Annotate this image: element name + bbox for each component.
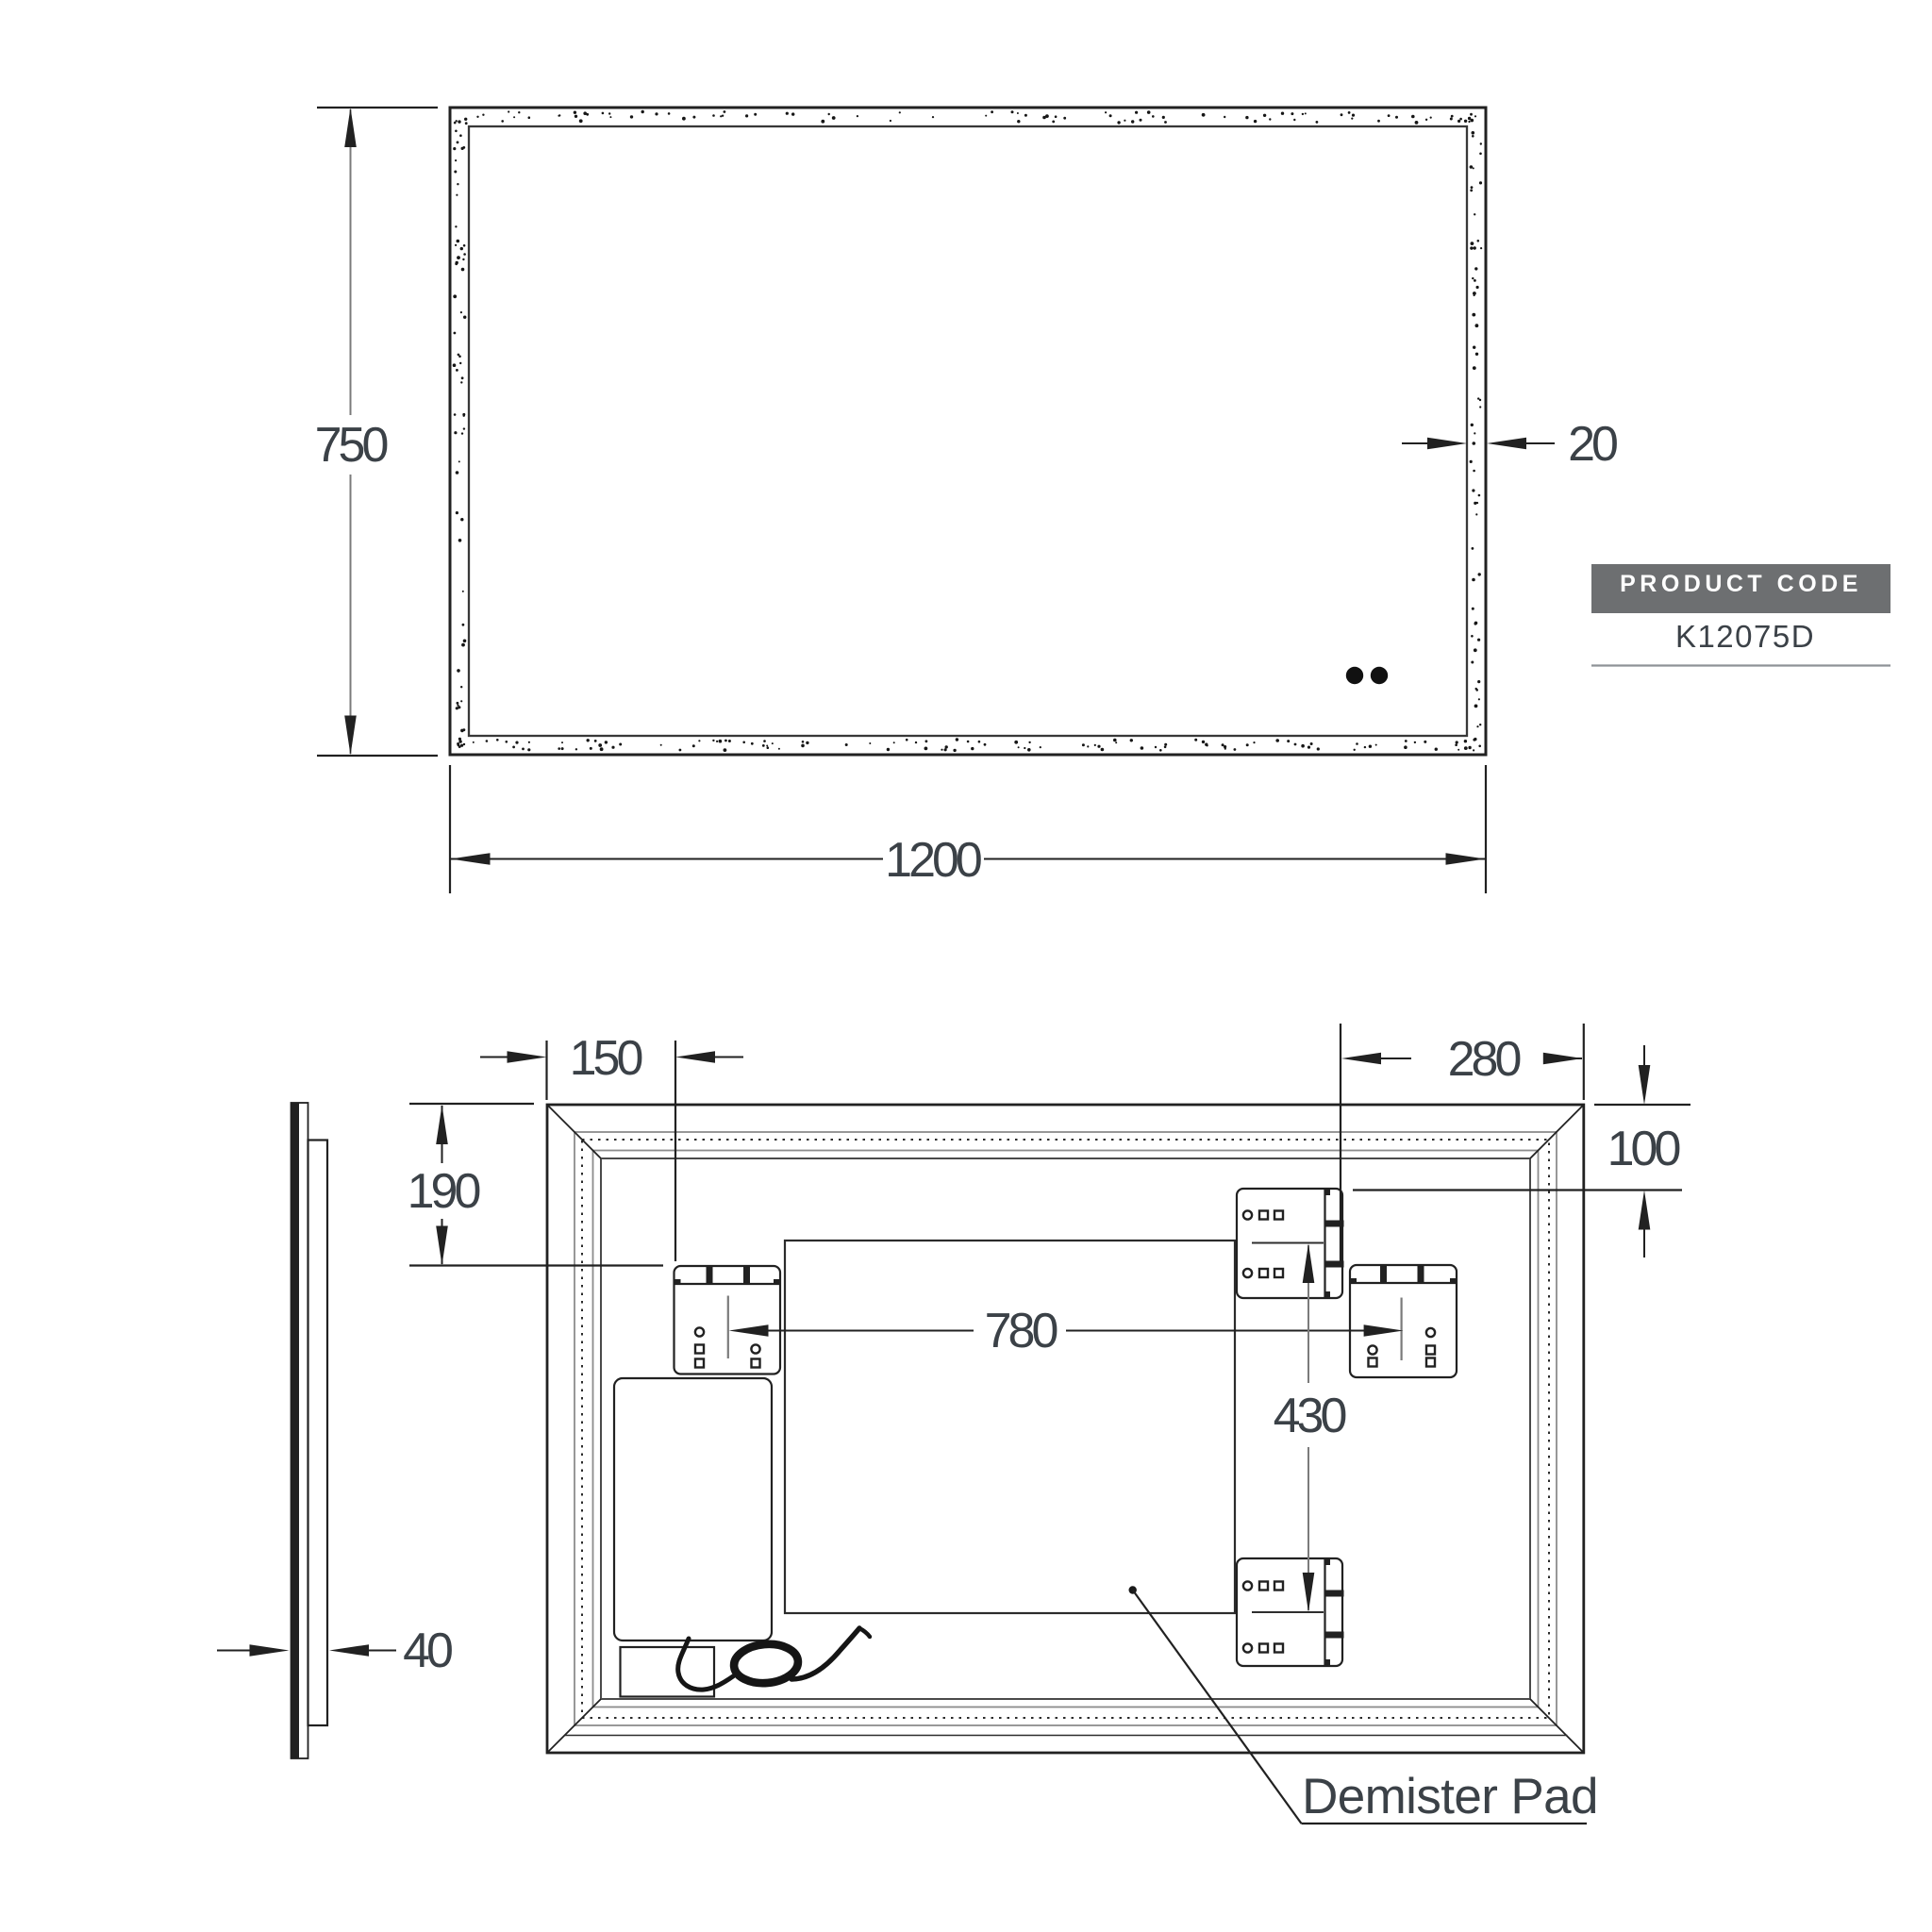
svg-text:K12075D: K12075D <box>1675 619 1815 654</box>
svg-text:750: 750 <box>315 418 388 473</box>
svg-text:780: 780 <box>985 1304 1058 1358</box>
svg-text:100: 100 <box>1607 1122 1680 1176</box>
svg-text:190: 190 <box>408 1164 480 1219</box>
svg-text:430: 430 <box>1274 1389 1346 1443</box>
svg-text:150: 150 <box>570 1031 642 1086</box>
svg-text:40: 40 <box>403 1624 452 1678</box>
svg-text:280: 280 <box>1448 1032 1521 1087</box>
svg-text:20: 20 <box>1568 417 1617 472</box>
svg-text:1200: 1200 <box>885 833 981 888</box>
svg-text:Demister Pad: Demister Pad <box>1302 1769 1598 1824</box>
svg-text:PRODUCT CODE: PRODUCT CODE <box>1620 571 1862 597</box>
